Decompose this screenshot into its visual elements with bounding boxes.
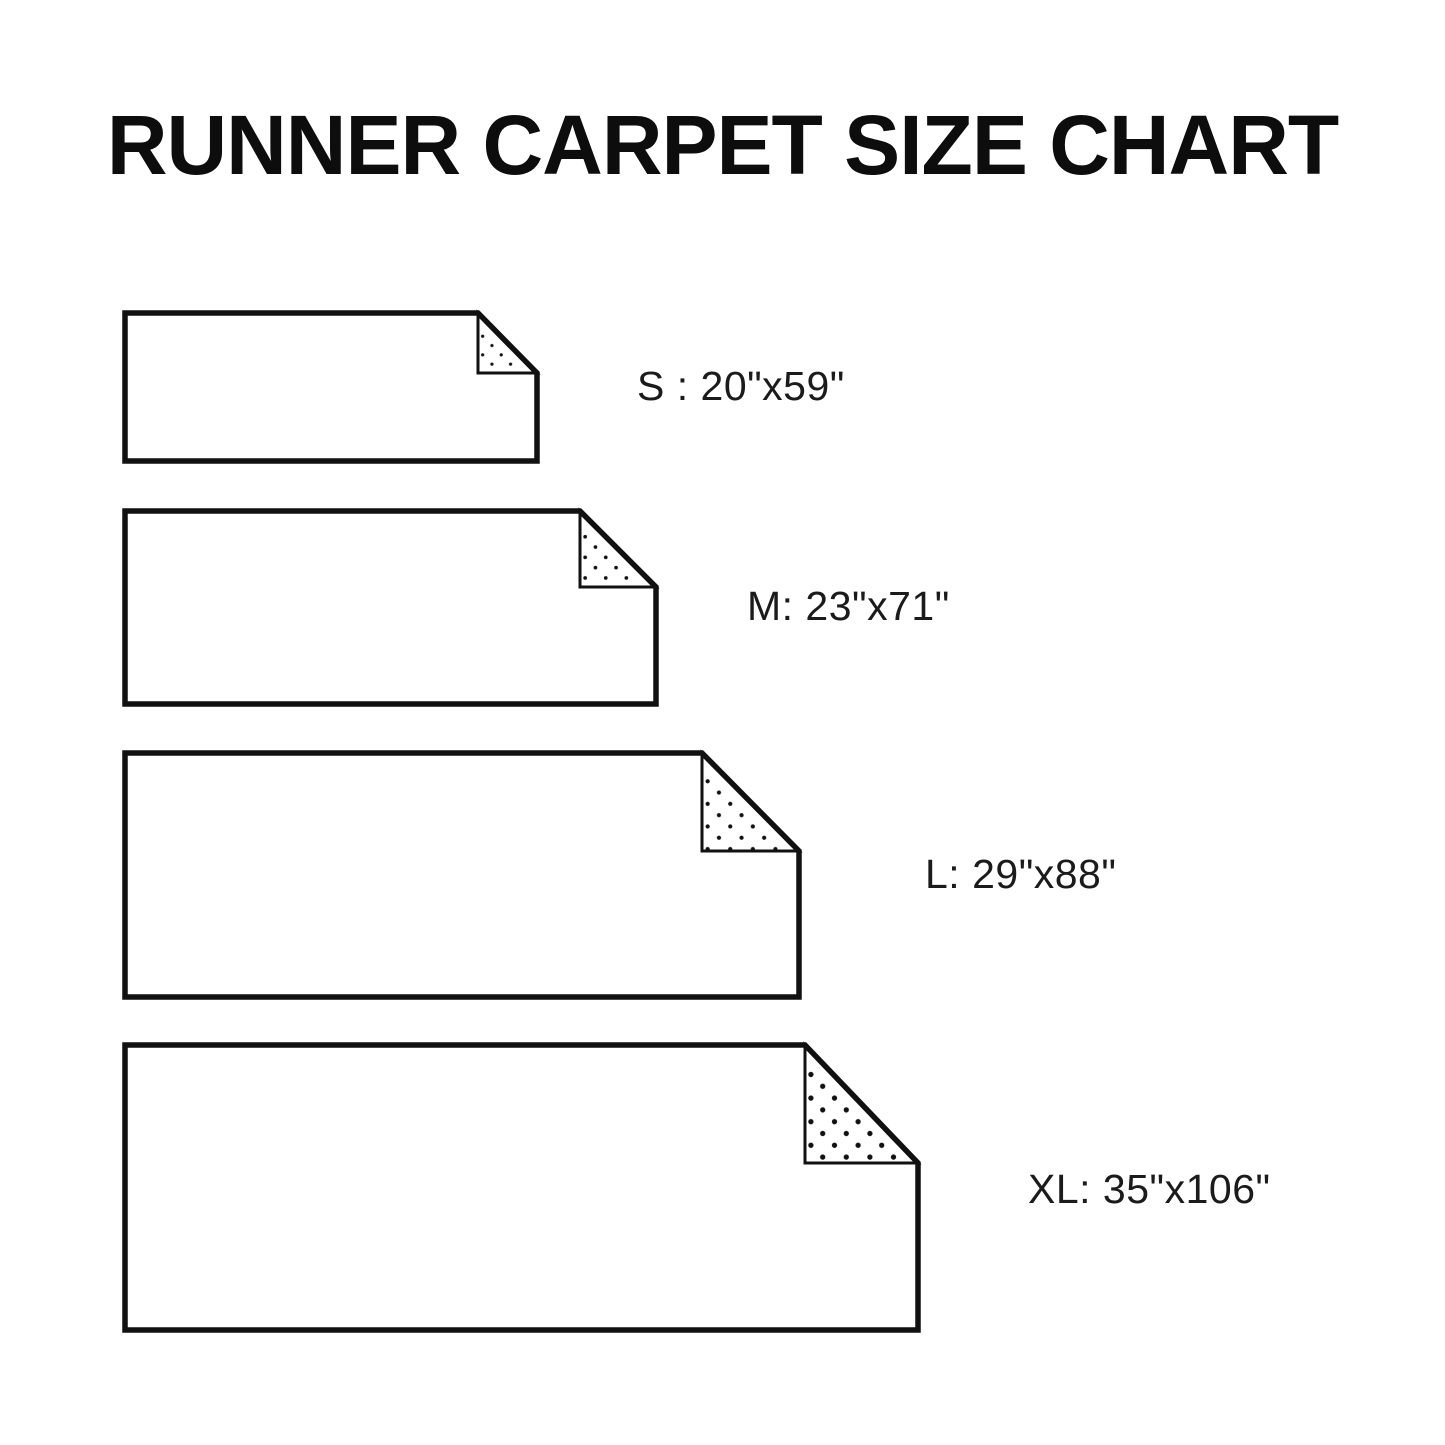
- size-label-xl: XL: 35"x106": [1028, 1165, 1271, 1213]
- size-label-m: M: 23"x71": [747, 582, 950, 630]
- page-title: RUNNER CARPET SIZE CHART: [0, 103, 1445, 187]
- carpet-outline: [125, 1045, 918, 1330]
- carpet-l-shape: [121, 749, 803, 1001]
- carpet-outline: [125, 511, 656, 704]
- carpet-diagram-xl: [121, 1041, 922, 1334]
- carpet-diagram-m: [121, 507, 660, 708]
- carpet-outline: [125, 753, 799, 997]
- carpet-s-shape: [121, 309, 541, 465]
- carpet-outline: [125, 313, 537, 461]
- size-label-s: S : 20"x59": [637, 362, 845, 410]
- carpet-xl-shape: [121, 1041, 922, 1334]
- carpet-diagram-l: [121, 749, 803, 1001]
- size-label-l: L: 29"x88": [925, 850, 1116, 898]
- runner-carpet-size-chart: RUNNER CARPET SIZE CHART S : 20"x59": [0, 0, 1445, 1445]
- carpet-m-shape: [121, 507, 660, 708]
- carpet-diagram-s: [121, 309, 541, 465]
